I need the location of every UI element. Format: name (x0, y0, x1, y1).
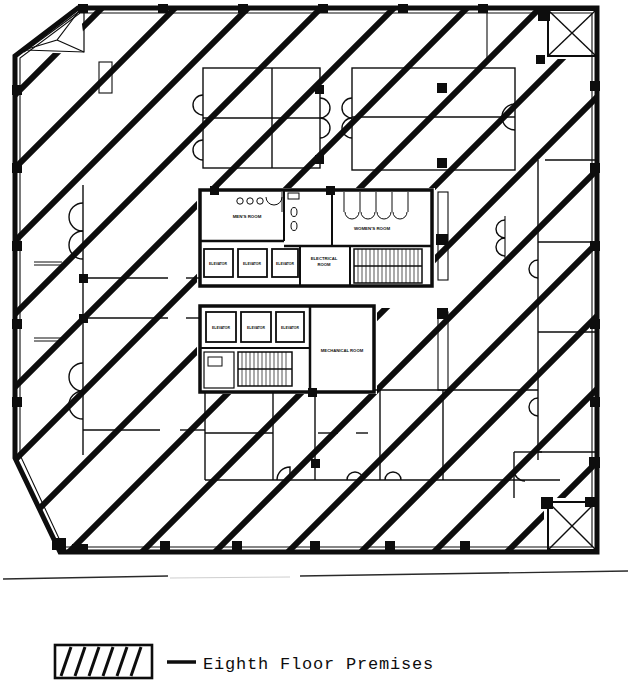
legend-label: Eighth Floor Premises (203, 655, 434, 674)
diagonal-hatch-swatch (55, 645, 152, 678)
elevator-label: ELEVATOR (276, 262, 294, 266)
elevator-label: ELEVATOR (243, 262, 261, 266)
elevator-label: ELEVATOR (209, 262, 227, 266)
elevator-label: ELEVATOR (281, 326, 299, 330)
scanned-floor-plan-page: MEN'S ROOM WOMEN'S ROOM ELECTRICAL ROOM … (0, 0, 630, 685)
legend: Eighth Floor Premises (55, 645, 434, 678)
mechanical-room-label: MECHANICAL ROOM (321, 348, 364, 353)
scan-fold-lines (3, 571, 628, 579)
womens-room-label: WOMEN'S ROOM (354, 226, 391, 231)
electrical-room-label-line1: ELECTRICAL (311, 256, 338, 261)
electrical-room-label-line2: ROOM (317, 262, 331, 267)
mens-room-label: MEN'S ROOM (233, 214, 262, 219)
elevator-label: ELEVATOR (212, 326, 230, 330)
elevator-label: ELEVATOR (247, 326, 265, 330)
floor-plan-drawing: MEN'S ROOM WOMEN'S ROOM ELECTRICAL ROOM … (0, 0, 630, 685)
